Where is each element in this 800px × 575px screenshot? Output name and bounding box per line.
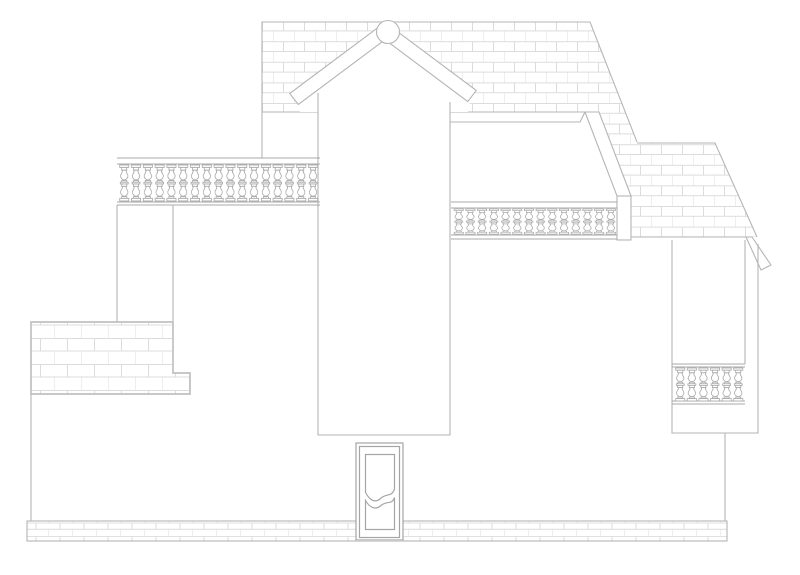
baluster [595,209,604,234]
brick-annex [31,322,190,521]
baluster [285,165,294,201]
baluster [478,209,487,234]
baluster [454,209,463,234]
deck-band-lines [450,112,585,122]
baluster [687,368,696,401]
left-balustrade-balusters [120,165,318,201]
baluster [309,165,318,201]
baluster [202,165,211,201]
left-balustrade [117,158,320,205]
baluster [571,209,580,234]
baluster [501,209,510,234]
baluster [297,165,306,201]
baluster [155,165,164,201]
baluster [273,165,282,201]
fascia-end-post [617,196,631,240]
baluster [226,165,235,201]
baluster [191,165,200,201]
gable-finial-circle [377,21,400,44]
baluster [238,165,247,201]
annex-hatch [31,322,190,394]
door-leaf-fill [356,443,403,541]
baluster [722,368,731,401]
baluster [560,209,569,234]
baluster [167,165,176,201]
baluster [548,209,557,234]
baluster [132,165,141,201]
baluster [143,165,152,201]
baluster [734,368,743,401]
baluster [583,209,592,234]
baluster [606,209,615,234]
porch-pier [672,240,758,521]
baluster [676,368,685,401]
left-wall-edges [117,112,262,322]
baluster [179,165,188,201]
porch-balustrade-balusters [676,368,743,401]
left-terrace [117,112,320,322]
baluster [120,165,129,201]
gable-and-tower [290,21,477,436]
baluster [699,368,708,401]
baluster [214,165,223,201]
baluster [261,165,270,201]
porch-balustrade [672,364,745,404]
baluster [466,209,475,234]
tower-bay [318,93,450,435]
deck-balustrade [451,202,617,239]
baluster [536,209,545,234]
entry-door [356,443,403,541]
deck-balustrade-balusters [454,209,615,234]
baluster [489,209,498,234]
elevation-drawing [0,0,800,575]
baluster [513,209,522,234]
elevation-svg [0,0,800,575]
baluster [711,368,720,401]
baluster [250,165,259,201]
baluster [524,209,533,234]
